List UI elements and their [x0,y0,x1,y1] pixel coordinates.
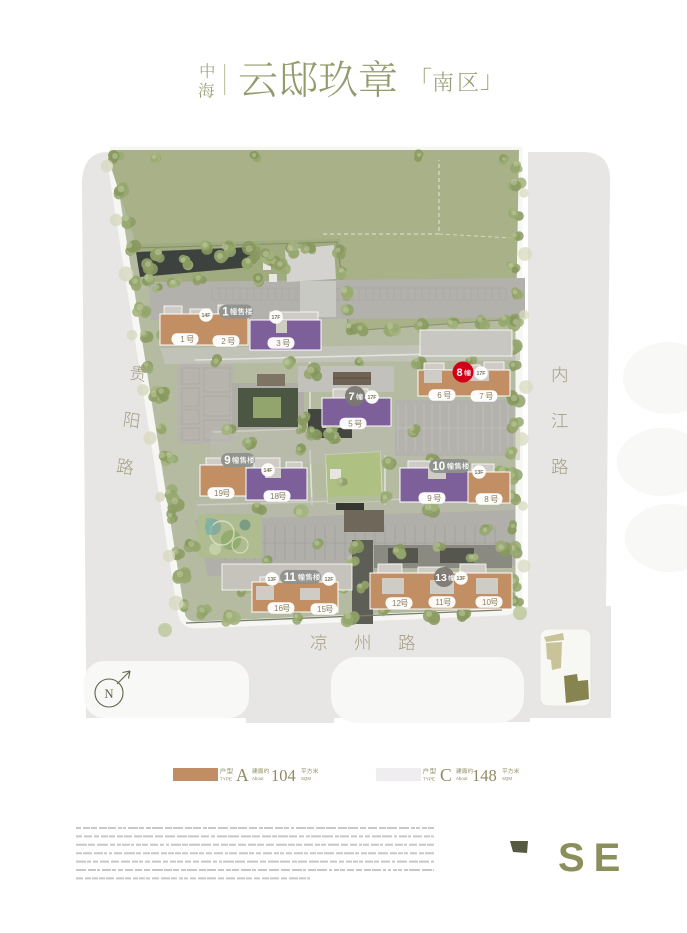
svg-text:13F: 13F [268,577,277,583]
svg-text:12F: 12F [325,577,334,583]
svg-text:11: 11 [284,572,297,584]
svg-text:17F: 17F [477,371,486,377]
svg-text:6: 6 [437,391,442,400]
svg-text:About: About [456,776,468,781]
svg-text:A: A [236,765,249,785]
svg-text:5: 5 [348,419,353,428]
svg-text:14F: 14F [264,468,273,474]
svg-text:3: 3 [276,339,281,348]
svg-text:13: 13 [435,572,447,584]
svg-text:14F: 14F [202,313,211,319]
svg-text:1: 1 [222,307,229,319]
svg-text:10: 10 [432,461,445,473]
svg-text:9: 9 [224,455,230,467]
svg-text:19: 19 [214,489,223,498]
svg-text:18: 18 [270,492,279,501]
svg-text:12: 12 [392,599,401,608]
svg-text:7: 7 [479,392,484,401]
svg-text:1: 1 [180,335,185,344]
svg-text:8: 8 [456,367,462,379]
svg-text:13F: 13F [475,470,484,476]
svg-text:C: C [440,765,452,785]
svg-text:About: About [252,776,264,781]
svg-text:17F: 17F [272,315,281,321]
svg-text:17F: 17F [368,395,377,401]
svg-text:2: 2 [221,337,226,346]
svg-text:SQM: SQM [502,776,512,781]
svg-text:15: 15 [317,605,326,614]
svg-text:N: N [104,687,113,701]
svg-text:10: 10 [482,598,491,607]
svg-text:SQM: SQM [301,776,311,781]
svg-text:104: 104 [271,766,296,785]
svg-text:148: 148 [472,766,497,785]
svg-text:13F: 13F [457,576,466,582]
svg-text:9: 9 [427,494,432,503]
svg-text:11: 11 [435,598,444,607]
svg-text:16: 16 [274,604,283,613]
svg-text:7: 7 [348,391,354,403]
svg-text:TYPE: TYPE [423,777,435,782]
svg-text:8: 8 [484,495,489,504]
svg-text:TYPE: TYPE [220,777,232,782]
